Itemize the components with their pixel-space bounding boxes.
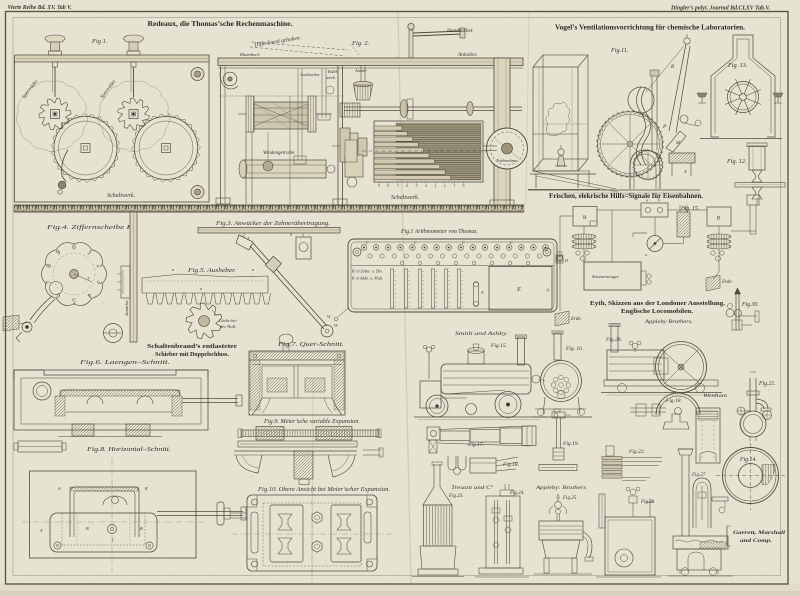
svg-text:Fig.18.: Fig.18. — [502, 462, 519, 468]
svg-text:Schaltenbrand’s entlasteter: Schaltenbrand’s entlasteter — [147, 343, 237, 350]
svg-text:Schaltwerk.: Schaltwerk. — [107, 193, 135, 199]
svg-text:Smith and Ashby.: Smith and Ashby. — [455, 331, 508, 337]
svg-text:Fig.26: Fig.26 — [640, 500, 655, 505]
svg-text:Fig.11.: Fig.11. — [610, 47, 628, 54]
svg-text:5: 5 — [72, 297, 76, 305]
svg-text:4: 4 — [425, 184, 427, 188]
svg-text:R ⊙ Subtr. u. Div.: R ⊙ Subtr. u. Div. — [351, 269, 383, 274]
svg-text:g: g — [290, 231, 292, 236]
svg-text:1: 1 — [453, 184, 455, 188]
svg-text:6: 6 — [406, 184, 408, 188]
svg-text:a: a — [646, 199, 648, 203]
svg-text:B: B — [86, 526, 89, 531]
svg-text:a: a — [252, 267, 254, 272]
svg-text:Vierte Reihe Bd. XV. Tab V.: Vierte Reihe Bd. XV. Tab V. — [8, 4, 72, 11]
svg-text:7: 7 — [397, 184, 399, 188]
svg-text:Garrett, Marshall: Garrett, Marshall — [733, 530, 786, 536]
svg-text:W: W — [334, 323, 338, 328]
svg-text:B: B — [140, 526, 143, 531]
svg-text:Fig.14.: Fig.14. — [739, 456, 757, 463]
svg-text:Redeaux, die Thomas’sche Reche: Redeaux, die Thomas’sche Rechenmaschine. — [148, 20, 293, 28]
svg-text:Tresant and Cº: Tresant and Cº — [451, 485, 494, 491]
svg-text:Fig.25: Fig.25 — [562, 496, 577, 501]
svg-text:3: 3 — [434, 184, 436, 188]
svg-text:Kühl-: Kühl- — [327, 69, 339, 74]
svg-text:Englische Locomobilen.: Englische Locomobilen. — [621, 308, 693, 315]
svg-text:Fig. 16.: Fig. 16. — [565, 346, 583, 352]
svg-text:Lücke bei: Lücke bei — [218, 318, 237, 323]
svg-text:Dingler’s polyt. Journal Bd.CL: Dingler’s polyt. Journal Bd.CLXV Tab.V. — [670, 5, 770, 12]
svg-text:Handkurbel.: Handkurbel. — [446, 28, 474, 34]
svg-text:Fig.3. Anwücker der Zehnerüber: Fig.3. Anwücker der Zehnerübertragung. — [215, 220, 330, 227]
svg-text:Rhomboch: Rhomboch — [239, 52, 260, 57]
svg-text:5: 5 — [416, 184, 418, 188]
svg-text:Fig.1 Arithmometer von Thomas.: Fig.1 Arithmometer von Thomas. — [400, 228, 478, 235]
svg-text:N: N — [480, 290, 484, 295]
svg-text:a: a — [172, 267, 174, 272]
svg-text:Fig 1.: Fig 1. — [91, 38, 108, 45]
svg-text:Vogel’s Ventilationsvorrichtun: Vogel’s Ventilationsvorrichtung für chem… — [555, 24, 745, 32]
svg-text:H: H — [564, 259, 568, 263]
svg-text:Wenham: Wenham — [703, 394, 728, 399]
svg-text:9: 9 — [378, 184, 380, 188]
svg-text:Fig. 2.: Fig. 2. — [351, 40, 370, 47]
svg-text:B: B — [583, 215, 587, 221]
svg-text:A: A — [57, 486, 61, 491]
svg-text:Fig.21.: Fig.21. — [758, 381, 776, 387]
svg-text:and Comp.: and Comp. — [740, 538, 772, 544]
svg-text:Fig.27: Fig.27 — [691, 473, 706, 478]
svg-text:Fig.24.: Fig.24. — [509, 491, 524, 496]
svg-text:K: K — [144, 486, 148, 491]
svg-text:Fig.17.: Fig.17. — [467, 442, 484, 448]
svg-text:2: 2 — [444, 184, 446, 188]
svg-text:E: E — [516, 287, 521, 293]
svg-text:R: R — [670, 65, 674, 70]
svg-text:0: 0 — [72, 244, 76, 252]
svg-text:W: W — [327, 314, 331, 319]
svg-text:Fig.9. Meier’sche variable Ex: Fig.9. Meier’sche variable Expansion. — [263, 418, 360, 425]
svg-text:a: a — [200, 286, 202, 291]
svg-text:Fig.6. Laengen–Schnitt.: Fig.6. Laengen–Schnitt. — [79, 359, 171, 366]
svg-text:Fig. 13.: Fig. 13. — [727, 62, 747, 69]
svg-text:Fig.30.: Fig.30. — [741, 302, 759, 308]
svg-text:Fig. 12.: Fig. 12. — [726, 158, 746, 165]
svg-text:Fig.15.: Fig.15. — [490, 343, 507, 349]
svg-text:Erde.: Erde. — [570, 317, 582, 322]
svg-text:Triebnehme.: Triebnehme. — [496, 158, 518, 163]
svg-text:Stromerzeuger.: Stromerzeuger. — [592, 274, 620, 279]
svg-text:Schieber mit Doppelschluss.: Schieber mit Doppelschluss. — [155, 351, 229, 358]
svg-text:Erde.: Erde. — [721, 280, 733, 285]
svg-text:werk.: werk. — [326, 75, 336, 80]
svg-text:Appleby Brothers.: Appleby Brothers. — [644, 319, 693, 325]
svg-text:Frischen, elekrische Hilfs=Sig: Frischen, elekrische Hilfs=Signale für E… — [549, 192, 703, 200]
svg-text:n: n — [645, 253, 647, 257]
svg-text:Schaltwerk.: Schaltwerk. — [391, 195, 419, 201]
svg-text:Fig.10. Obere Ansicht bei Meie: Fig.10. Obere Ansicht bei Meier’scher Ex… — [257, 486, 390, 493]
svg-text:0: 0 — [463, 184, 465, 188]
svg-text:Fig.23.: Fig.23. — [448, 494, 463, 499]
svg-text:Fig. 15.: Fig. 15. — [680, 206, 699, 212]
svg-text:Fig.7. Quer-Schnitt.: Fig.7. Quer-Schnitt. — [277, 341, 344, 348]
svg-text:Eyth, Skizzen aus der Londoner: Eyth, Skizzen aus der Londoner Ausstellu… — [590, 300, 725, 307]
svg-text:8: 8 — [387, 184, 389, 188]
svg-text:P: P — [662, 124, 667, 130]
svg-text:Appleby: Brothers: Appleby: Brothers — [535, 486, 586, 491]
svg-text:B: B — [717, 216, 721, 222]
svg-text:X: X — [683, 169, 687, 174]
svg-text:b: b — [658, 199, 660, 203]
svg-text:Fig.28.: Fig.28. — [605, 337, 622, 343]
svg-text:Anwücker: Anwücker — [124, 300, 129, 317]
svg-text:Fig.22.: Fig.22. — [628, 449, 645, 455]
svg-text:Fig.4. Ziffernscheibe K.: Fig.4. Ziffernscheibe K. — [46, 224, 136, 231]
svg-text:Fig.8. Horizontal–Schnitt.: Fig.8. Horizontal–Schnitt. — [86, 446, 172, 453]
svg-text:A: A — [39, 528, 43, 533]
svg-text:Fig.19.: Fig.19. — [562, 441, 579, 447]
svg-text:R ⊙ Addit. u. Mult.: R ⊙ Addit. u. Mult. — [351, 276, 383, 281]
svg-text:Fig.5. Ausheber.: Fig.5. Ausheber. — [187, 267, 236, 274]
svg-text:der Null.: der Null. — [220, 324, 236, 329]
svg-text:Anhalter.: Anhalter. — [457, 52, 477, 58]
